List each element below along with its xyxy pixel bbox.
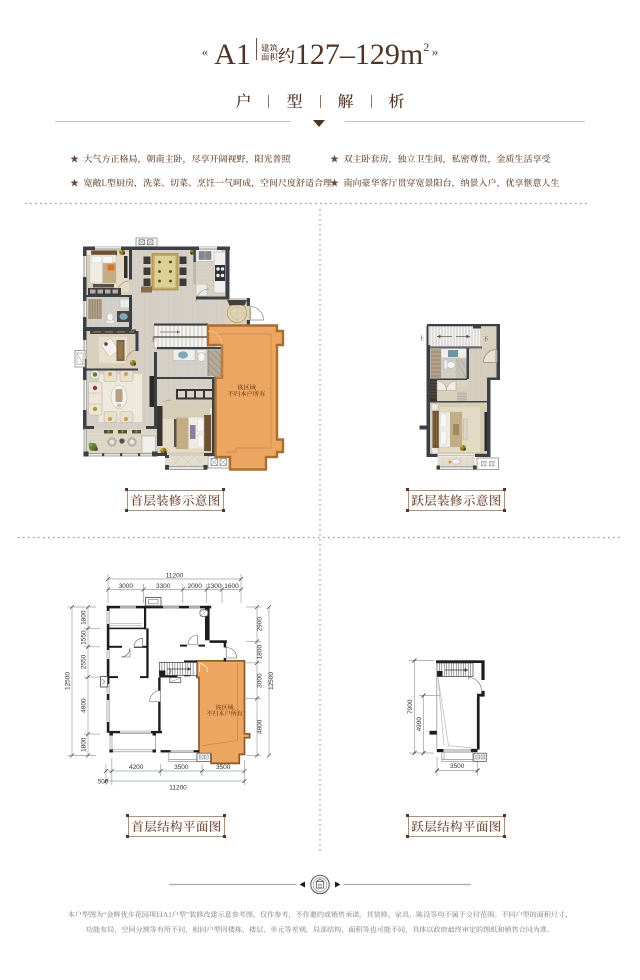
svg-text:3000: 3000 <box>257 673 264 688</box>
svg-text:11200: 11200 <box>169 785 187 792</box>
svg-text:上: 上 <box>168 669 173 676</box>
svg-text:不归本户所有: 不归本户所有 <box>228 389 266 398</box>
svg-text:11200: 11200 <box>166 573 184 580</box>
svg-text:4200: 4200 <box>129 764 144 771</box>
svg-text:3300: 3300 <box>156 583 171 590</box>
svg-text:1800: 1800 <box>81 610 88 625</box>
svg-text:500: 500 <box>98 779 109 786</box>
svg-text:不归本户所有: 不归本户所有 <box>206 709 243 718</box>
svg-text:7900: 7900 <box>407 699 414 714</box>
svg-text:1800: 1800 <box>257 644 264 659</box>
svg-text:2900: 2900 <box>257 617 264 632</box>
svg-text:下: 下 <box>483 335 489 343</box>
svg-text:1550: 1550 <box>81 630 88 645</box>
svg-text:12500: 12500 <box>65 672 72 690</box>
svg-text:4800: 4800 <box>81 698 88 713</box>
svg-text:上: 上 <box>151 335 157 343</box>
svg-text:3500: 3500 <box>216 764 231 771</box>
svg-text:12500: 12500 <box>268 672 275 690</box>
svg-text:3500: 3500 <box>174 764 189 771</box>
svg-text:1300: 1300 <box>207 583 222 590</box>
svg-text:4800: 4800 <box>257 719 264 734</box>
svg-text:上: 上 <box>419 334 425 342</box>
svg-text:4900: 4900 <box>416 717 423 732</box>
svg-text:3500: 3500 <box>450 763 465 770</box>
svg-text:2550: 2550 <box>81 654 88 669</box>
svg-text:3000: 3000 <box>119 583 134 590</box>
svg-text:2000: 2000 <box>187 583 202 590</box>
svg-text:1600: 1600 <box>224 583 239 590</box>
svg-text:1800: 1800 <box>81 737 88 752</box>
